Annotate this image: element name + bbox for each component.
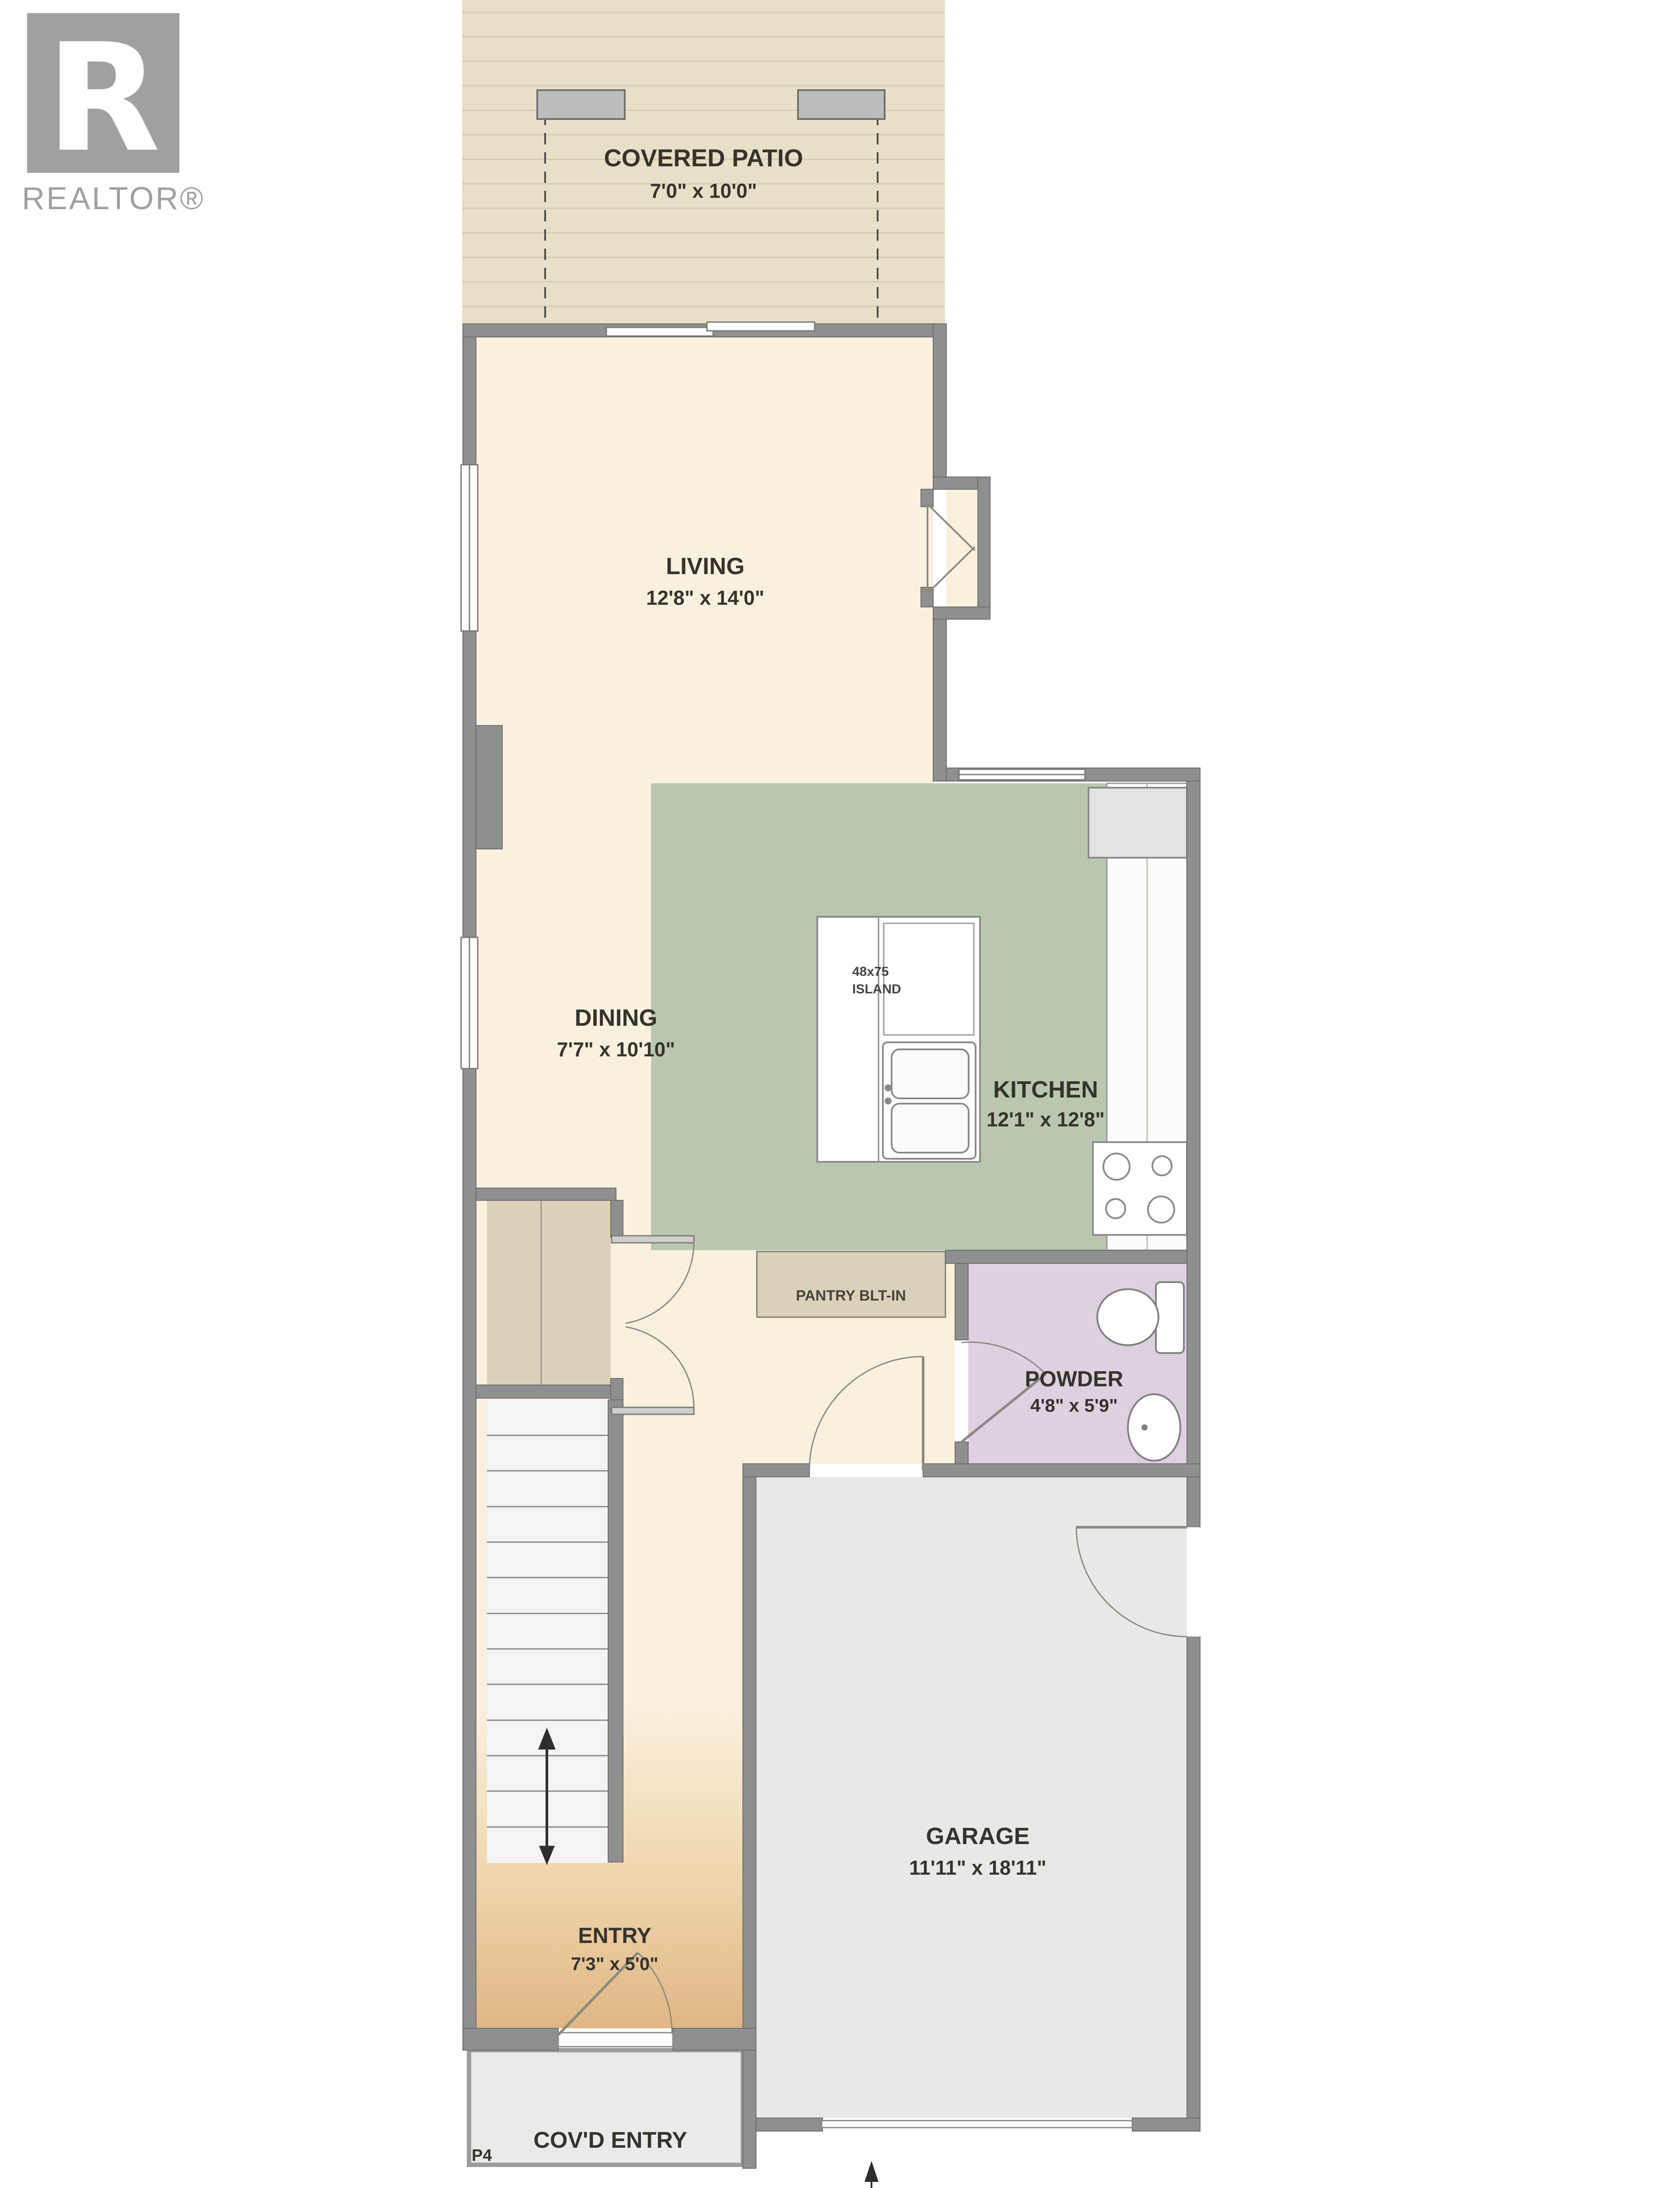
wall-right-outer-lower — [1187, 1637, 1200, 2131]
wall-garage-bottom-left — [756, 2118, 822, 2131]
closet-area — [487, 1200, 611, 1385]
wall-closet-stub-upper — [611, 1200, 623, 1238]
covered-entry-label: COV'D ENTRY — [533, 2128, 687, 2153]
garage-floor — [756, 1477, 1187, 2118]
wall-stairs-right — [608, 1400, 623, 1862]
wall-front-left — [463, 2028, 558, 2050]
living-dims: 12'8" x 14'0" — [646, 586, 764, 609]
patio-post-left — [537, 90, 625, 119]
realtor-wordmark: REALTOR® — [22, 181, 205, 216]
wall-garage-top-right — [923, 1464, 1200, 1477]
kitchen-window-top — [959, 769, 1085, 780]
wall-living-right-lower — [933, 619, 946, 781]
wall-closet-top — [476, 1188, 616, 1200]
dining-label: DINING — [575, 1005, 658, 1031]
wall-nook-right — [978, 477, 990, 619]
garage-overhead-door — [822, 2121, 1132, 2128]
wall-right-outer-upper — [1187, 781, 1200, 1527]
wall-pilaster — [476, 726, 502, 849]
wall-closet-bottom — [476, 1385, 616, 1398]
island-label-line2: ISLAND — [852, 982, 901, 996]
island-cabinet — [884, 923, 974, 1035]
staircase — [487, 1400, 608, 1865]
island-double-sink — [883, 1042, 976, 1159]
fridge — [1088, 788, 1187, 858]
floorplan-page: R REALTOR® — [0, 0, 1680, 2188]
powder-label: POWDER — [1025, 1367, 1123, 1391]
entry-label: ENTRY — [578, 1923, 651, 1948]
wall-powder-left-lower — [955, 1442, 968, 1464]
plan-code-label: P4 — [472, 2146, 492, 2165]
wall-garage-left — [743, 1477, 756, 2168]
wall-front-right — [673, 2028, 756, 2050]
kitchen-island — [817, 917, 980, 1162]
pantry-label: PANTRY BLT-IN — [796, 1287, 906, 1304]
kitchen-label: KITCHEN — [993, 1076, 1098, 1103]
powder-sink — [1128, 1394, 1180, 1461]
dining-dims: 7'7" x 10'10" — [557, 1038, 675, 1061]
wall-powder-top — [945, 1250, 1187, 1263]
covered-patio-dims: 7'0" x 10'0" — [650, 179, 757, 202]
patio-post-right — [798, 90, 885, 119]
garage-label: GARAGE — [926, 1823, 1029, 1849]
north-arrow-icon — [864, 2161, 898, 2188]
wall-garage-bottom-right — [1132, 2118, 1200, 2131]
living-window-left — [461, 465, 478, 631]
covered-patio-label: COVERED PATIO — [604, 144, 803, 172]
wall-powder-left-upper — [955, 1263, 968, 1340]
stove-cooktop — [1093, 1142, 1187, 1235]
realtor-logo-letter: R — [46, 12, 161, 185]
garage-dims: 11'11" x 18'11" — [909, 1856, 1046, 1879]
entry-dims: 7'3" x 5'0" — [571, 1953, 658, 1974]
dining-window-left — [461, 937, 478, 1069]
powder-dims: 4'8" x 5'9" — [1030, 1395, 1118, 1416]
floorplan-drawing: R REALTOR® — [0, 0, 1680, 2188]
wall-garage-top-left — [743, 1464, 809, 1477]
island-label-line1: 48x75 — [852, 964, 889, 979]
wall-nook-bottom — [933, 607, 990, 619]
pantry-area — [757, 1252, 945, 1317]
kitchen-dims: 12'1" x 12'8" — [987, 1108, 1105, 1131]
living-label: LIVING — [666, 553, 745, 579]
realtor-logo: R REALTOR® — [22, 12, 205, 216]
wall-living-right-upper — [933, 324, 946, 489]
